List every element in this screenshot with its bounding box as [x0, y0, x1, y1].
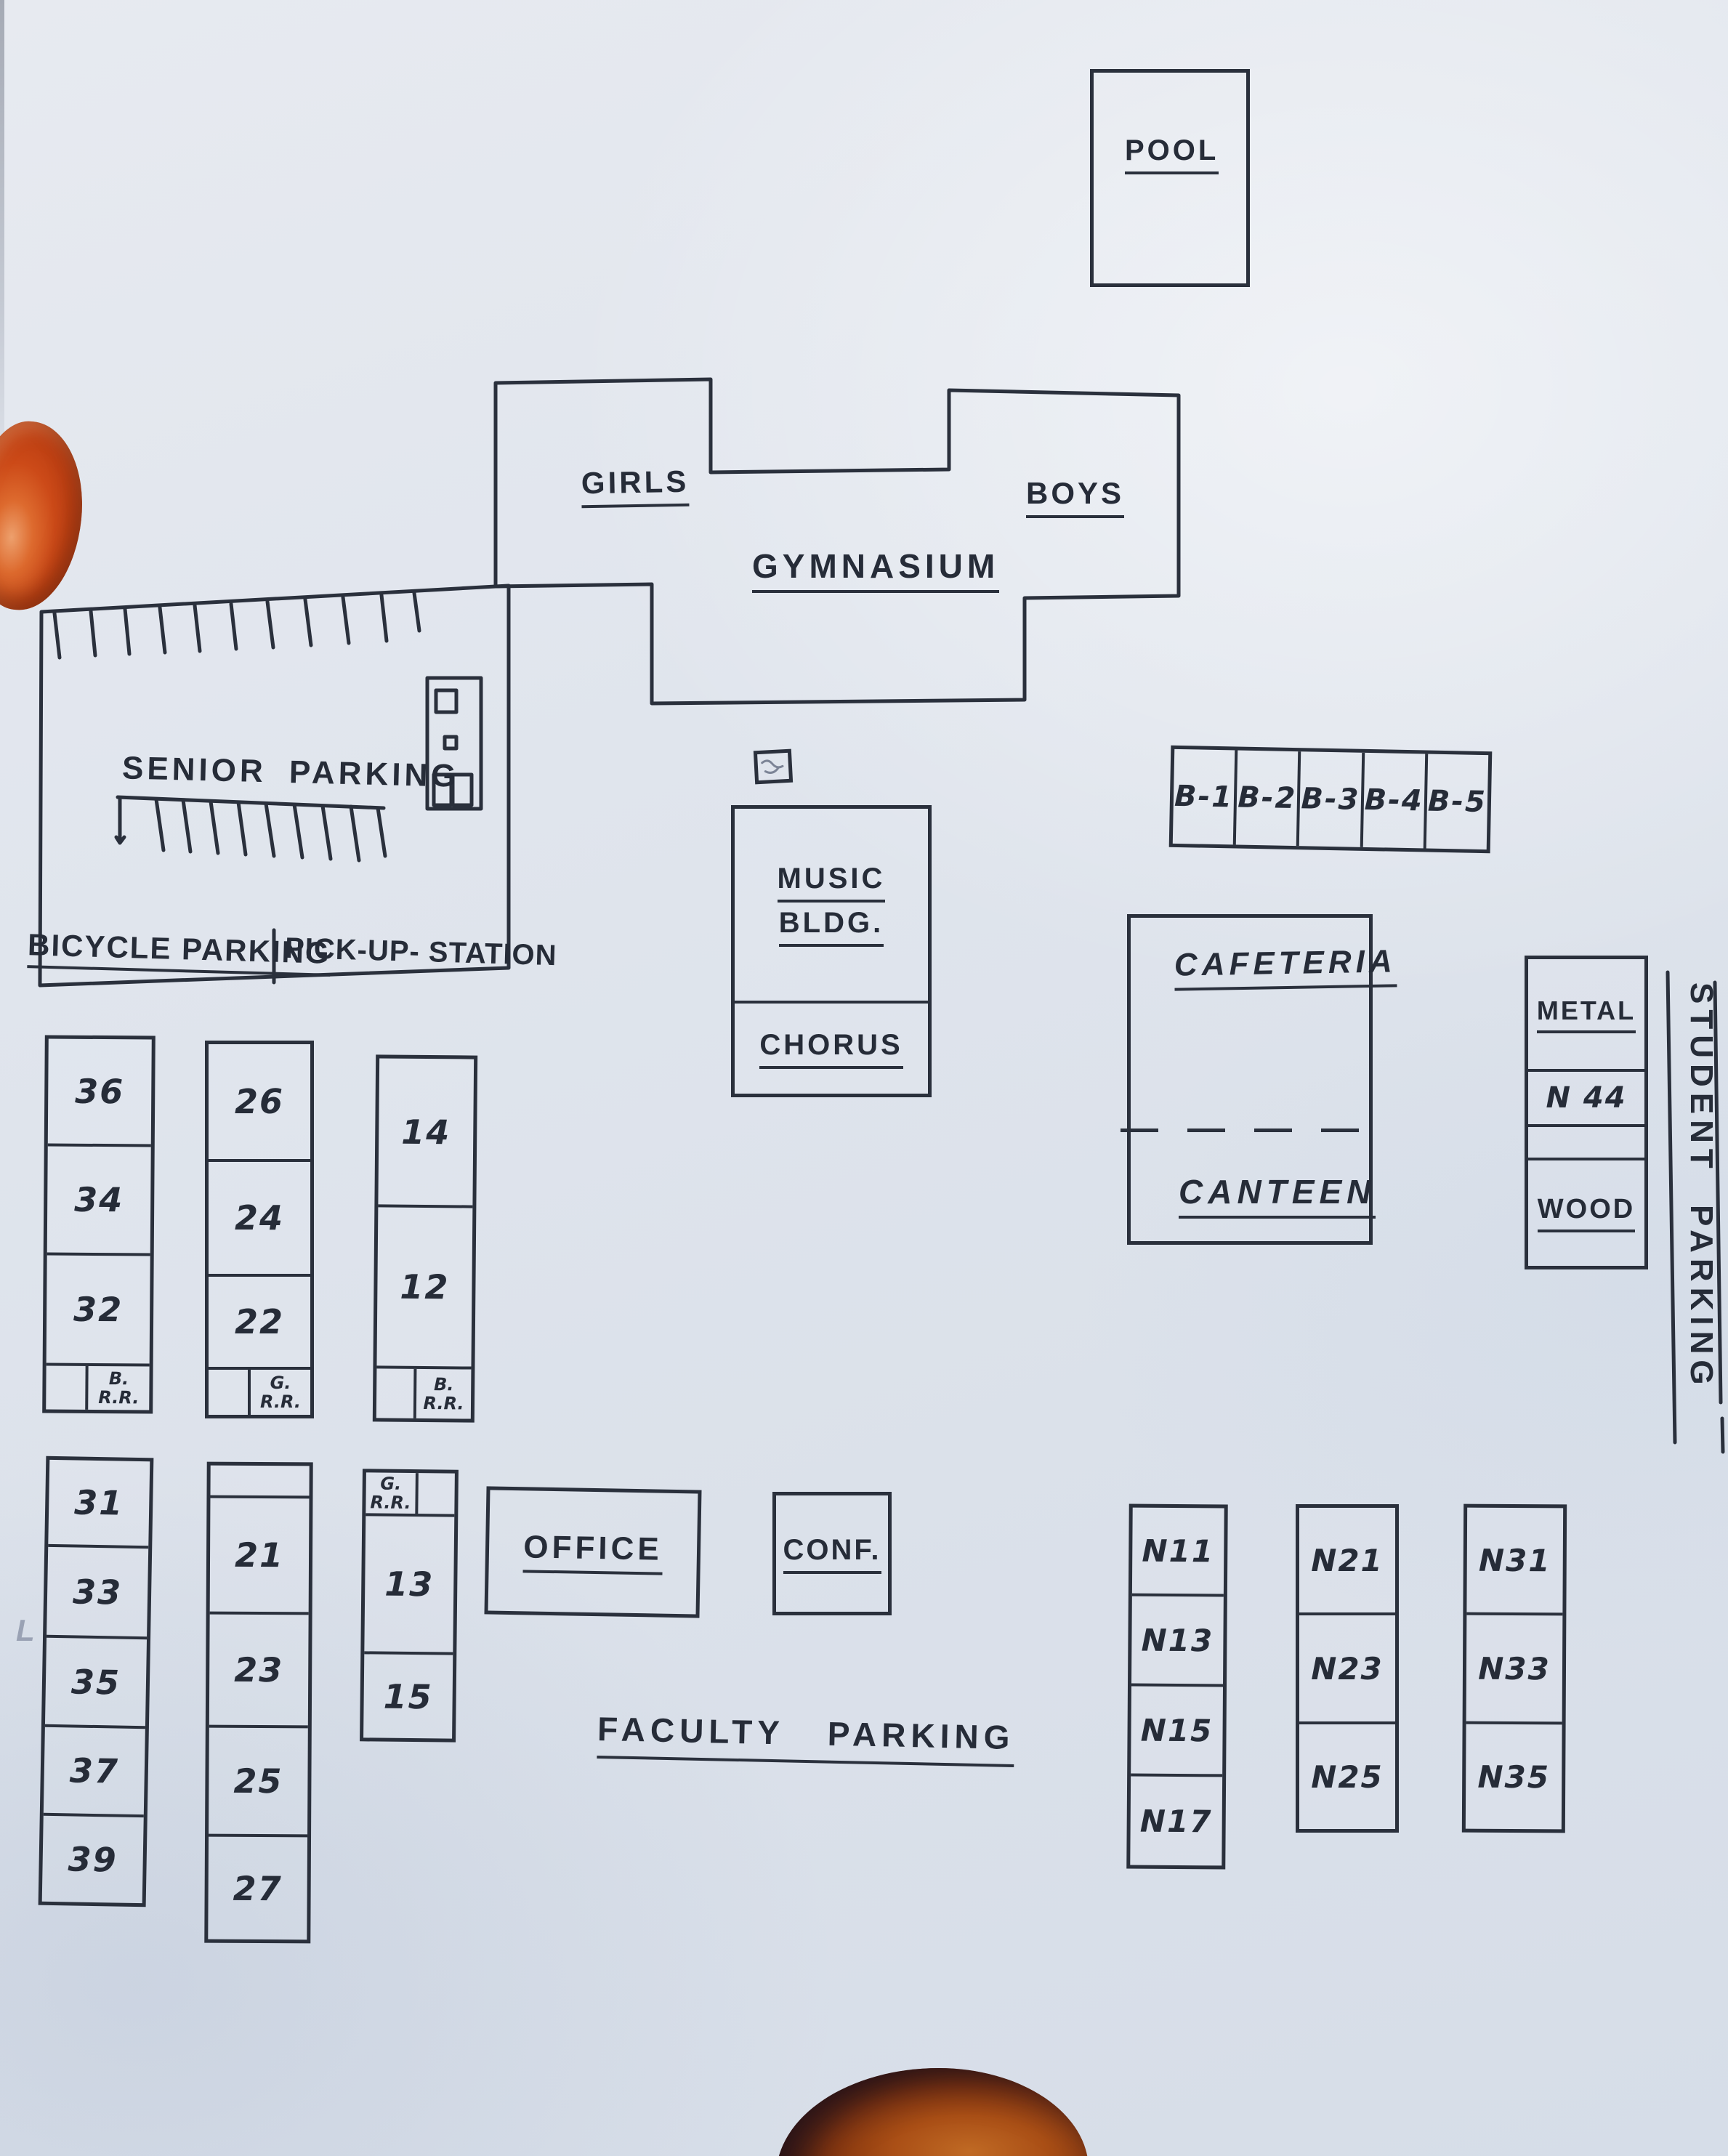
room-32-label: 32 [73, 1290, 123, 1329]
room-13: 13 [364, 1516, 454, 1655]
restroom-26-empty [209, 1370, 251, 1415]
room-n17-label: N17 [1140, 1803, 1213, 1839]
room-13-label: 13 [384, 1564, 435, 1604]
room-22-label: 22 [235, 1302, 284, 1341]
cafeteria-canteen-divider [1121, 1129, 1378, 1132]
room-25-label: 25 [233, 1761, 283, 1801]
room-21: 21 [210, 1498, 310, 1615]
room-12-label: 12 [400, 1267, 449, 1307]
room-26-label: 26 [235, 1082, 284, 1121]
shops-empty-cell [1528, 1127, 1644, 1160]
restroom-row-26: G. R.R. [209, 1370, 310, 1415]
restroom-13: G. R.R. [366, 1472, 419, 1514]
restroom-row-14: B. R.R. [376, 1368, 472, 1418]
room-n33: N33 [1466, 1615, 1563, 1725]
wood-label: WOOD [1538, 1194, 1635, 1232]
office-building: OFFICE [484, 1486, 701, 1618]
faculty-parking-label: FACULTY PARKING [597, 1709, 1015, 1767]
room-15-label: 15 [383, 1676, 433, 1716]
classroom-wing-36: 36 34 32 B. R.R. [42, 1035, 156, 1413]
restroom-13-label: G. R.R. [370, 1474, 411, 1512]
room-n25: N25 [1299, 1724, 1395, 1829]
campus-map-photo: POOL GIRLS BOYS GYMNASIUM SENIOR PARKING… [0, 0, 1728, 2156]
wing-21-entry [210, 1466, 309, 1499]
pool-label: POOL [1125, 134, 1219, 174]
classroom-wing-31: 31 33 35 37 39 [39, 1456, 154, 1907]
room-b4: B-4 [1362, 753, 1428, 849]
room-n23: N23 [1299, 1615, 1395, 1724]
room-31: 31 [48, 1460, 150, 1549]
room-n11: N11 [1132, 1508, 1224, 1597]
classroom-wing-26: 26 24 22 G. R.R. [205, 1041, 314, 1418]
room-34: 34 [47, 1147, 151, 1256]
office-label: OFFICE [523, 1529, 663, 1575]
room-33-label: 33 [73, 1572, 123, 1612]
room-n33-label: N33 [1478, 1650, 1551, 1687]
chorus-room: CHORUS [735, 1004, 928, 1094]
restroom-26: G. R.R. [251, 1370, 310, 1415]
bldg-label: BLDG. [779, 907, 884, 947]
canteen-label: CANTEEN [1179, 1172, 1376, 1219]
room-39-label: 39 [68, 1839, 118, 1879]
restroom-14-label: B. R.R. [423, 1375, 464, 1413]
room-27: 27 [208, 1837, 307, 1940]
room-14-label: 14 [401, 1112, 451, 1152]
room-35: 35 [45, 1638, 147, 1729]
cafeteria-building: CAFETERIA CANTEEN [1127, 914, 1373, 1245]
room-35-label: 35 [71, 1662, 121, 1702]
room-n31-label: N31 [1479, 1542, 1551, 1578]
conf-label: CONF. [783, 1534, 881, 1574]
room-34-label: 34 [74, 1180, 124, 1219]
room-b1: B-1 [1173, 749, 1238, 845]
wood-shop-room: WOOD [1528, 1160, 1644, 1266]
room-23-label: 23 [234, 1650, 283, 1689]
room-15: 15 [363, 1654, 453, 1738]
room-n23-label: N23 [1311, 1651, 1384, 1687]
room-b5-label: B-5 [1427, 785, 1487, 820]
room-b3: B-3 [1299, 751, 1365, 847]
room-n25-label: N25 [1311, 1759, 1384, 1795]
room-37-label: 37 [69, 1751, 119, 1790]
chorus-label: CHORUS [759, 1029, 903, 1069]
room-n21-label: N21 [1311, 1543, 1384, 1578]
room-36-label: 36 [75, 1072, 124, 1111]
room-26: 26 [209, 1044, 310, 1162]
room-b3-label: B-3 [1301, 782, 1360, 817]
room-32: 32 [47, 1256, 150, 1367]
music-building: MUSIC BLDG. CHORUS [731, 805, 932, 1097]
room-b4-label: B-4 [1364, 783, 1424, 818]
metal-label: METAL [1537, 996, 1636, 1033]
room-39: 39 [42, 1816, 144, 1903]
classroom-wing-n11: N11 N13 N15 N17 [1126, 1504, 1228, 1870]
room-n44: N 44 [1528, 1072, 1644, 1127]
classroom-wing-n21: N21 N23 N25 [1296, 1504, 1399, 1833]
room-b1-label: B-1 [1174, 780, 1234, 815]
room-12: 12 [376, 1207, 472, 1369]
scribble-icon [757, 753, 789, 780]
classroom-wing-13: G. R.R. 13 15 [360, 1469, 459, 1742]
conference-building: CONF. [772, 1492, 892, 1615]
room-n35-label: N35 [1477, 1759, 1550, 1795]
room-14: 14 [378, 1058, 474, 1208]
classroom-wing-21: 21 23 25 27 [204, 1462, 312, 1944]
small-scribble-box [754, 749, 793, 785]
room-36: 36 [48, 1039, 152, 1147]
room-25: 25 [209, 1728, 308, 1838]
student-parking-label: STUDENT PARKING [1683, 982, 1719, 1433]
room-27-label: 27 [233, 1868, 283, 1907]
room-22: 22 [209, 1277, 310, 1370]
room-24-label: 24 [235, 1198, 284, 1238]
music-bldg-room: MUSIC BLDG. [735, 809, 928, 1004]
restroom-14: B. R.R. [416, 1369, 472, 1419]
pencil-mark: L [16, 1613, 35, 1648]
room-n11-label: N11 [1142, 1533, 1214, 1569]
music-label: MUSIC [778, 863, 886, 903]
cafeteria-label: CAFETERIA [1174, 943, 1397, 990]
n44-label: N 44 [1546, 1081, 1626, 1115]
restroom-36-label: B. R.R. [98, 1369, 139, 1408]
gymnasium-label: GYMNASIUM [752, 546, 999, 593]
restroom-36-empty [46, 1365, 88, 1409]
room-b2-label: B-2 [1238, 781, 1297, 816]
room-b2: B-2 [1236, 751, 1301, 847]
pool-building [1090, 69, 1250, 287]
gym-boys-label: BOYS [1026, 476, 1124, 518]
room-n21: N21 [1299, 1508, 1395, 1615]
room-n13: N13 [1131, 1596, 1224, 1687]
room-37: 37 [44, 1727, 145, 1817]
room-n17: N17 [1130, 1777, 1222, 1866]
room-21-label: 21 [235, 1535, 284, 1575]
gym-girls-label: GIRLS [581, 464, 690, 509]
room-24: 24 [209, 1162, 310, 1277]
classroom-wing-14: 14 12 B. R.R. [373, 1054, 477, 1422]
b-row-building: B-1 B-2 B-3 B-4 B-5 [1169, 746, 1493, 853]
room-n15-label: N15 [1141, 1712, 1214, 1748]
restroom-36: B. R.R. [88, 1366, 149, 1410]
metal-shop-room: METAL [1528, 959, 1644, 1072]
room-b5: B-5 [1426, 754, 1489, 850]
room-23: 23 [209, 1615, 309, 1729]
room-n15: N15 [1131, 1687, 1223, 1777]
room-n31: N31 [1466, 1508, 1563, 1616]
room-33: 33 [47, 1547, 148, 1639]
room-31-label: 31 [74, 1482, 124, 1522]
shops-building: METAL N 44 WOOD [1525, 956, 1648, 1269]
restroom-13-empty [418, 1473, 455, 1514]
classroom-wing-n31: N31 N33 N35 [1462, 1504, 1567, 1833]
restroom-26-label: G. R.R. [260, 1373, 301, 1412]
restroom-14-empty [376, 1368, 417, 1418]
room-n35: N35 [1466, 1724, 1562, 1830]
restroom-row-36: B. R.R. [46, 1365, 149, 1410]
gymnasium-outline [496, 379, 1179, 703]
restroom-row-13: G. R.R. [366, 1472, 455, 1517]
room-n13-label: N13 [1141, 1622, 1214, 1658]
